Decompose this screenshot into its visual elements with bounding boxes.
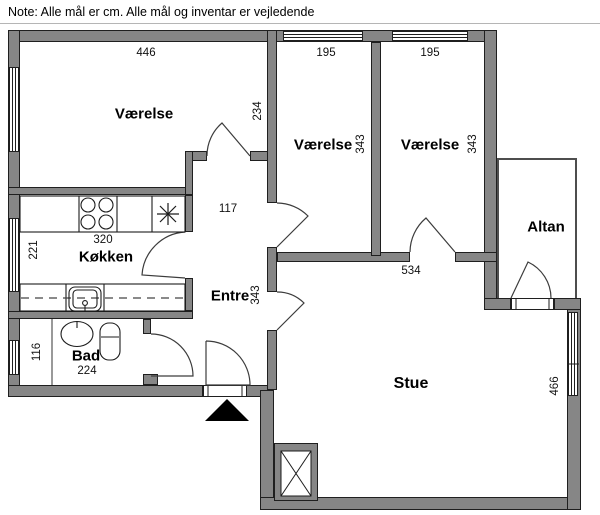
dimension-label: 343 <box>467 134 479 153</box>
wall <box>8 311 193 319</box>
floor-plan: Note: Alle mål er cm. Alle mål og invent… <box>0 0 600 515</box>
room-label-vaerelse-3: Værelse <box>401 137 459 154</box>
dimension-label: 116 <box>31 343 43 361</box>
room-label-koekken: Køkken <box>79 249 133 266</box>
entrance-marker-icon <box>205 399 249 421</box>
wall <box>8 385 203 397</box>
dimension-label: 343 <box>250 285 262 304</box>
window <box>9 67 19 152</box>
room-label-altan: Altan <box>527 219 565 236</box>
wall <box>371 42 381 256</box>
window <box>568 312 578 396</box>
window <box>392 31 468 41</box>
entrance-door <box>203 385 247 397</box>
note-divider <box>0 23 600 24</box>
wall <box>267 30 277 203</box>
dimension-label: 117 <box>219 203 237 215</box>
wall <box>185 195 193 232</box>
window <box>9 218 19 292</box>
wall <box>484 30 497 310</box>
window <box>283 31 363 41</box>
wall <box>143 374 158 385</box>
balcony-wall <box>575 158 577 298</box>
wall <box>267 247 277 292</box>
wall <box>267 330 277 390</box>
washbasin-icon <box>61 321 93 347</box>
wall <box>484 298 511 310</box>
room-label-vaerelse-2: Værelse <box>294 137 352 154</box>
shaft-wall <box>274 443 318 501</box>
dimension-label: 466 <box>549 376 561 395</box>
dimension-label: 343 <box>355 134 367 153</box>
cooktop-star-icon <box>157 203 179 225</box>
wall <box>143 319 151 334</box>
wall <box>185 278 193 311</box>
wall <box>455 252 497 262</box>
balcony-wall <box>497 158 577 160</box>
wall <box>8 187 193 195</box>
note-text: Note: Alle mål er cm. Alle mål og invent… <box>8 5 314 19</box>
wall <box>277 252 410 262</box>
wall <box>554 298 581 310</box>
sink-icon <box>69 287 101 311</box>
dimension-label: 195 <box>316 47 335 59</box>
window <box>9 340 19 375</box>
dimension-label: 446 <box>136 47 155 59</box>
stove-icon <box>81 198 113 229</box>
wall <box>260 390 274 510</box>
room-label-entre: Entre <box>211 288 249 305</box>
balcony-wall <box>497 158 499 298</box>
toilet-icon <box>100 323 120 360</box>
room-label-vaerelse-1: Værelse <box>115 106 173 123</box>
dimension-label: 534 <box>401 265 420 277</box>
wall <box>185 151 193 195</box>
dimension-label: 234 <box>252 101 264 120</box>
room-label-stue: Stue <box>394 375 429 393</box>
dimension-label: 221 <box>28 240 40 259</box>
room-label-bad: Bad <box>72 348 100 365</box>
dimension-label: 320 <box>93 234 112 246</box>
balcony-door <box>511 298 554 310</box>
dimension-label: 224 <box>77 365 96 377</box>
dimension-label: 195 <box>420 47 439 59</box>
